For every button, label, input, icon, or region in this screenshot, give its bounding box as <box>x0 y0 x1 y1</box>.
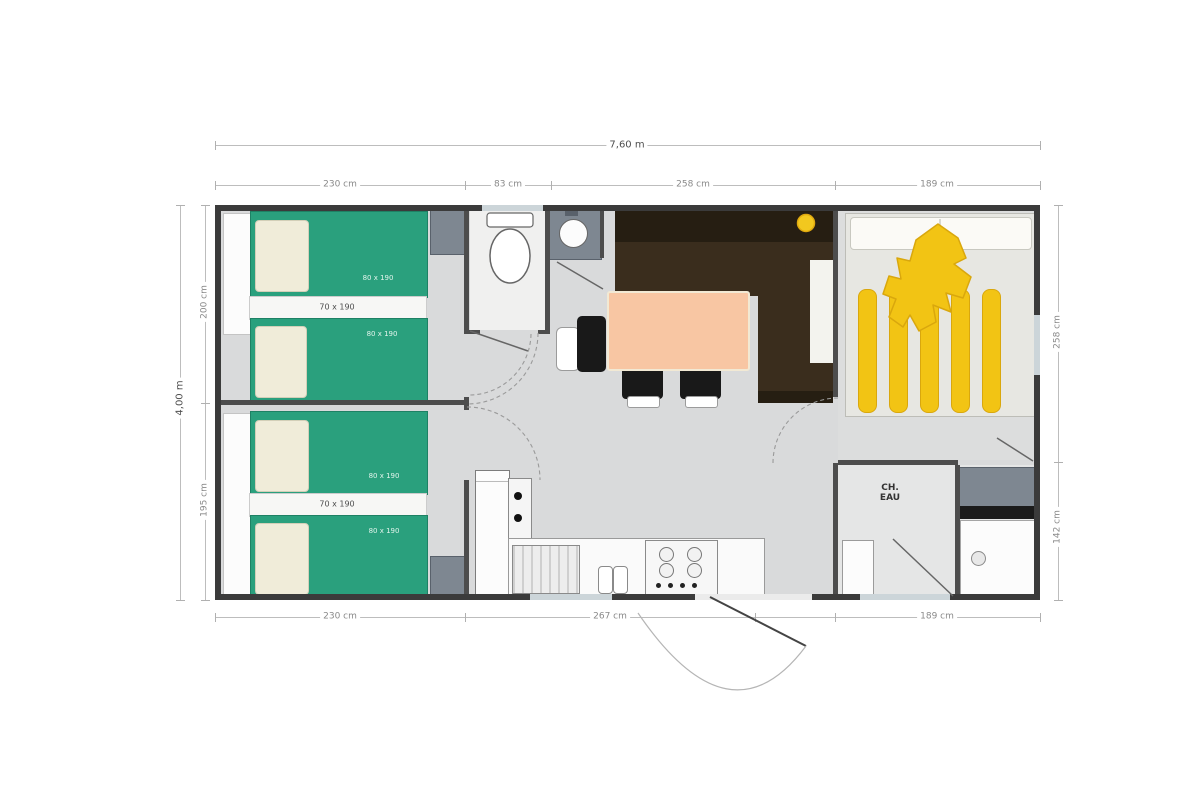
dim-top-4: 189 cm <box>917 180 957 191</box>
dim-right-1: 258 cm <box>1053 312 1064 352</box>
water-heater-label: CH. EAU <box>880 483 900 503</box>
master-bed-pillows <box>850 217 1032 250</box>
water-heater-line2: EAU <box>880 493 900 503</box>
bedroom-top-nightstand-label: 70 x 190 <box>319 303 354 312</box>
dim-bottom-3: 189 cm <box>917 612 957 623</box>
sofa-seat <box>615 242 758 296</box>
dining-chair-left-seat <box>577 316 606 372</box>
sink-bowl-2 <box>613 566 628 594</box>
oven-knob-2 <box>514 514 522 522</box>
bedroom-top-bed-2-size: 80 x 190 <box>367 330 398 338</box>
wall-top <box>215 205 1040 211</box>
wall-master-upper <box>833 211 838 397</box>
washbasin-icon <box>559 219 588 248</box>
wall-washbasin-nook <box>600 211 604 258</box>
wall-bedrooms-stub <box>464 397 469 410</box>
window-master <box>1034 315 1040 375</box>
bedspread-stripe-2 <box>889 289 908 413</box>
wall-bedrooms-upper <box>464 211 469 332</box>
bedroom-bottom-wardrobe <box>430 556 465 598</box>
wall-bedroom-divider <box>221 400 464 405</box>
wall-wc-right <box>545 211 550 332</box>
dim-total-width: 7,60 m <box>606 140 647 151</box>
oven-knob-1 <box>514 492 522 500</box>
wall-master-lower <box>833 463 838 594</box>
sofa-end-band <box>758 391 833 403</box>
bedroom-top-wardrobe <box>430 209 468 255</box>
wall-wc-bottom-a <box>464 330 480 334</box>
sofa-back <box>615 211 833 242</box>
vanity-basin-icon <box>971 551 986 566</box>
bedroom-bottom-nightstand-label: 70 x 190 <box>319 500 354 509</box>
dim-right-2: 142 cm <box>1053 507 1064 547</box>
bedspread-stripe-1 <box>858 289 877 413</box>
stove-knob-4 <box>692 583 697 588</box>
bedroom-bottom-bed-2-pillow <box>255 523 309 595</box>
bedroom-top-bed-2-pillow <box>255 326 307 398</box>
bedroom-bottom-bed-1-pillow <box>255 420 309 492</box>
burner-3 <box>659 563 674 578</box>
wall-bedrooms-lower <box>464 480 469 594</box>
dim-left-1: 200 cm <box>200 282 211 322</box>
window-bathroom <box>860 594 950 600</box>
stove-icon <box>645 540 718 598</box>
sofa-side-shelf <box>810 260 833 363</box>
dim-top-1: 230 cm <box>320 180 360 191</box>
wall-right <box>1034 205 1040 600</box>
dim-left-2: 195 cm <box>200 480 211 520</box>
water-heater-line1: CH. <box>880 483 900 493</box>
sink-bowl-1 <box>598 566 613 594</box>
entrance-threshold <box>695 594 812 600</box>
window-wc <box>482 205 543 211</box>
bedspread-stripe-4 <box>951 289 970 413</box>
burner-2 <box>687 547 702 562</box>
fridge-icon <box>475 470 510 600</box>
burner-4 <box>687 563 702 578</box>
shower-tray <box>957 467 1036 508</box>
wall-bathroom-top <box>838 460 958 465</box>
fridge-divider <box>476 481 508 482</box>
stove-knob-3 <box>680 583 685 588</box>
dining-table <box>607 291 750 371</box>
dim-top-3: 258 cm <box>673 180 713 191</box>
stove-knob-2 <box>668 583 673 588</box>
wall-wc-bottom-b <box>538 330 550 334</box>
drainer-icon <box>512 545 580 594</box>
wall-bottom-left <box>215 594 695 600</box>
oven-column <box>508 478 532 540</box>
window-kitchen <box>530 594 612 600</box>
entrance-door-leaf <box>710 597 806 646</box>
dim-total-height: 4,00 m <box>175 377 186 418</box>
master-bed-pillow-divider <box>939 219 941 246</box>
dim-bottom-1: 230 cm <box>320 612 360 623</box>
wall-bathroom-divider <box>955 465 960 594</box>
bedroom-top-bed-1-pillow <box>255 220 309 292</box>
burner-1 <box>659 547 674 562</box>
floor-plan-canvas: 80 x 190 70 x 190 80 x 190 80 x 190 70 x… <box>0 0 1200 800</box>
bedspread-stripe-3 <box>920 289 939 413</box>
bedroom-top-bed-1-size: 80 x 190 <box>363 274 394 282</box>
bedroom-bottom-bed-1-size: 80 x 190 <box>369 472 400 480</box>
wc-floor <box>470 211 545 330</box>
entrance-door-arc <box>638 613 806 690</box>
dining-chair-2-back <box>685 396 718 408</box>
bedroom-bottom-bed-2-size: 80 x 190 <box>369 527 400 535</box>
bedspread-stripe-5 <box>982 289 1001 413</box>
heater-closet-door <box>842 540 874 596</box>
dim-bottom-2: 267 cm <box>590 612 630 623</box>
shower-glass <box>957 506 1034 519</box>
stove-knob-1 <box>656 583 661 588</box>
dim-top-2: 83 cm <box>491 180 525 191</box>
dining-chair-1-back <box>627 396 660 408</box>
